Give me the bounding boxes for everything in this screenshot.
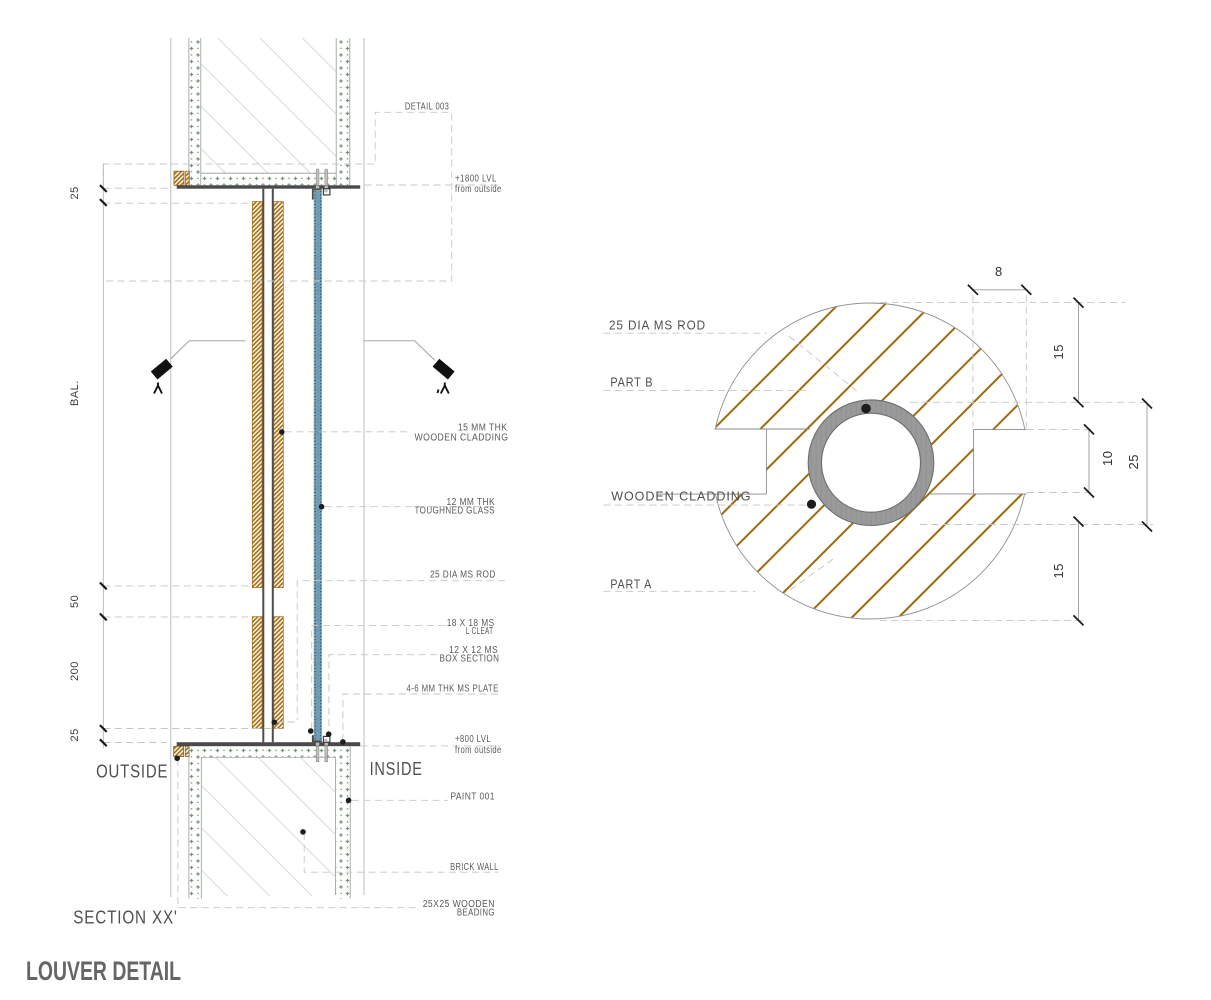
svg-text:from outside: from outside — [455, 184, 502, 195]
svg-text:LOUVER DETAIL: LOUVER DETAIL — [26, 956, 181, 986]
svg-text:25 DIA MS ROD: 25 DIA MS ROD — [430, 570, 496, 581]
svg-text:WOODEN CLADDING: WOODEN CLADDING — [611, 488, 751, 503]
svg-text:25: 25 — [1126, 454, 1141, 469]
svg-text:PART B: PART B — [610, 375, 653, 390]
svg-text:200: 200 — [69, 661, 81, 681]
svg-text:BOX SECTION: BOX SECTION — [440, 653, 500, 664]
svg-text:+800 LVL: +800 LVL — [455, 734, 491, 745]
svg-text:4-6 MM THK MS PLATE: 4-6 MM THK MS PLATE — [407, 683, 499, 694]
svg-text:15: 15 — [1051, 563, 1066, 578]
svg-text:SECTION XX': SECTION XX' — [73, 907, 177, 928]
svg-text:25: 25 — [69, 728, 81, 741]
svg-text:L CLEAT: L CLEAT — [466, 626, 494, 637]
svg-text:8: 8 — [995, 264, 1003, 279]
svg-text:10: 10 — [1100, 451, 1115, 466]
svg-text:50: 50 — [69, 595, 81, 608]
svg-text:25: 25 — [69, 186, 81, 199]
svg-text:15: 15 — [1051, 344, 1066, 359]
svg-text:BAL.: BAL. — [69, 380, 81, 406]
svg-text:PART A: PART A — [610, 576, 652, 591]
svg-text:PAINT 001: PAINT 001 — [450, 792, 495, 803]
svg-text:DETAIL 003: DETAIL 003 — [405, 102, 449, 113]
svg-text:WOODEN CLADDING: WOODEN CLADDING — [415, 432, 509, 443]
svg-text:BRICK WALL: BRICK WALL — [450, 862, 499, 873]
svg-text:TOUGHNED GLASS: TOUGHNED GLASS — [415, 506, 496, 517]
svg-text:25 DIA MS ROD: 25 DIA MS ROD — [609, 318, 706, 333]
svg-text:OUTSIDE: OUTSIDE — [96, 761, 168, 782]
svg-text:INSIDE: INSIDE — [370, 758, 423, 779]
svg-text:from outside: from outside — [455, 745, 502, 756]
svg-text:BEADING: BEADING — [457, 908, 495, 919]
